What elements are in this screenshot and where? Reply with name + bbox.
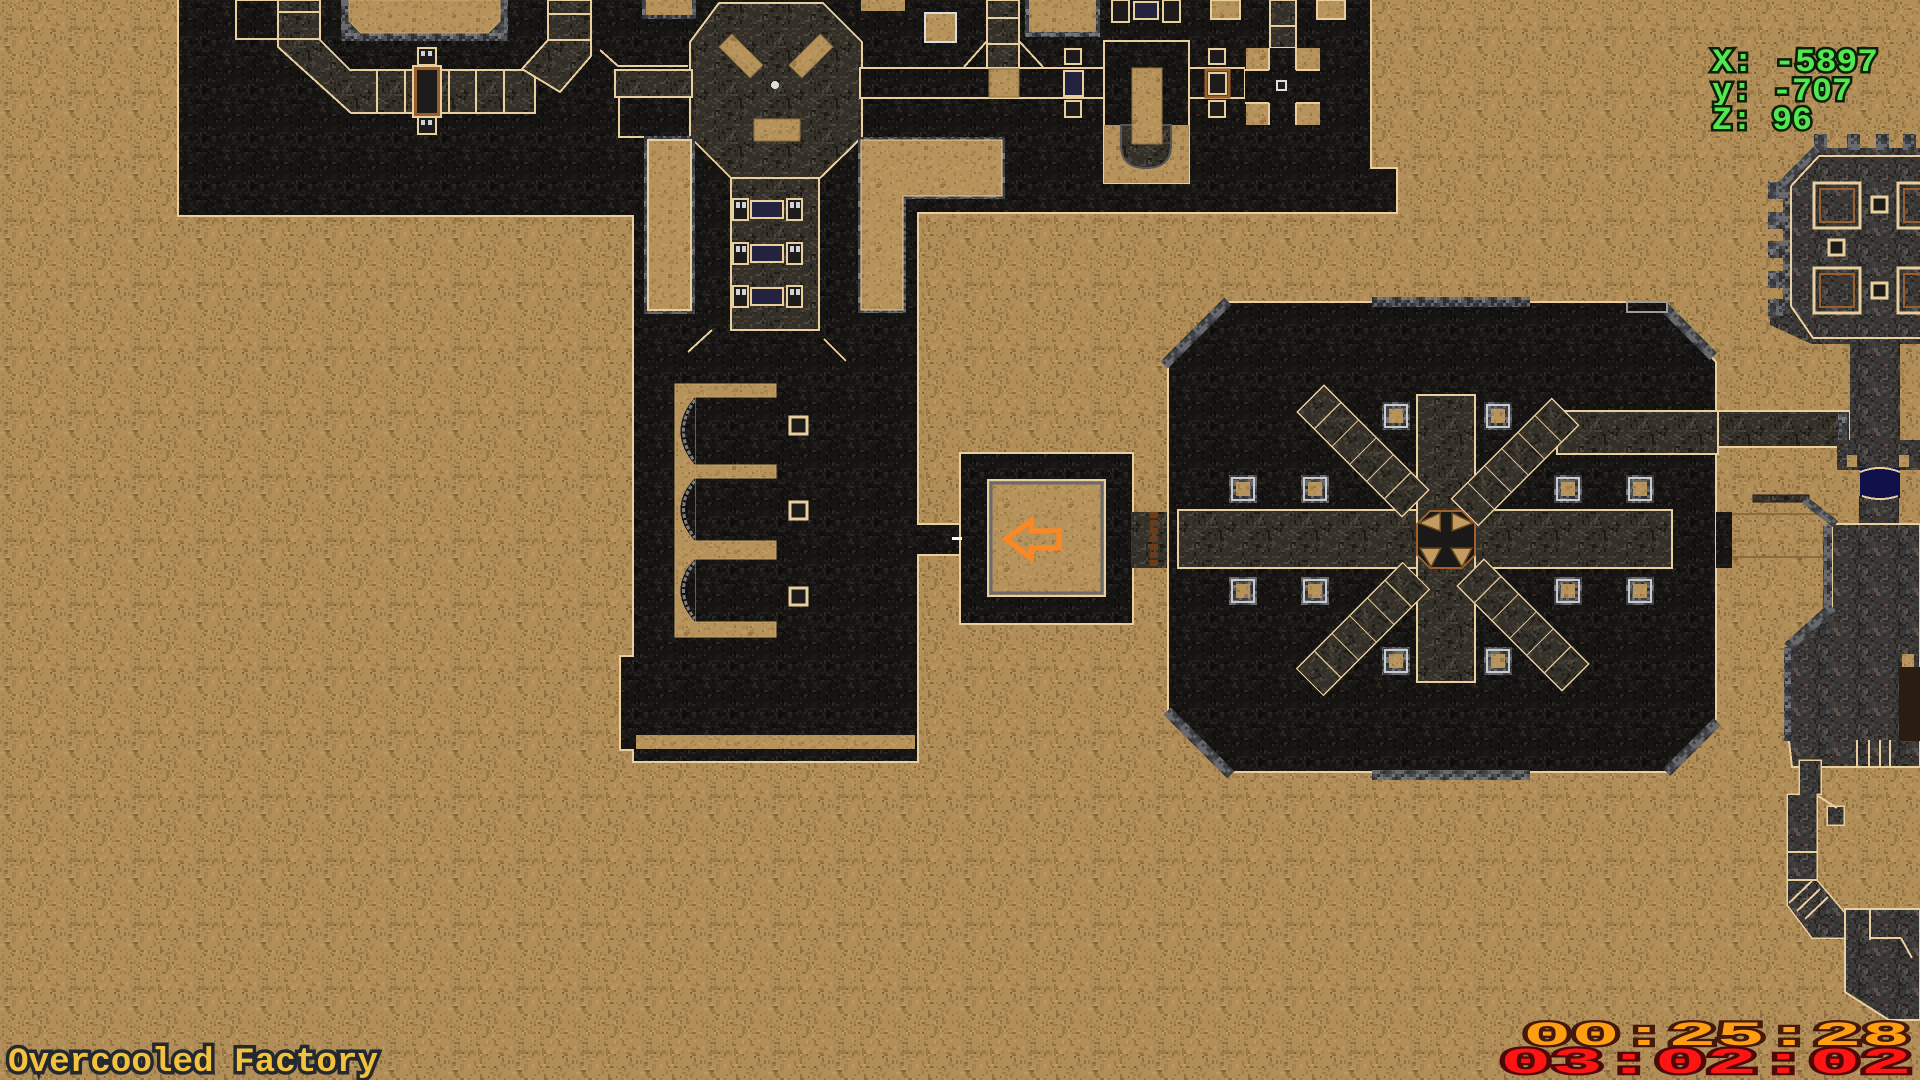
svg-text:Overcooled Factory: Overcooled Factory (8, 1044, 378, 1080)
svg-text:Z: 96: Z: 96 (1712, 102, 1812, 139)
svg-text:03:02:02: 03:02:02 (1500, 1043, 1912, 1080)
